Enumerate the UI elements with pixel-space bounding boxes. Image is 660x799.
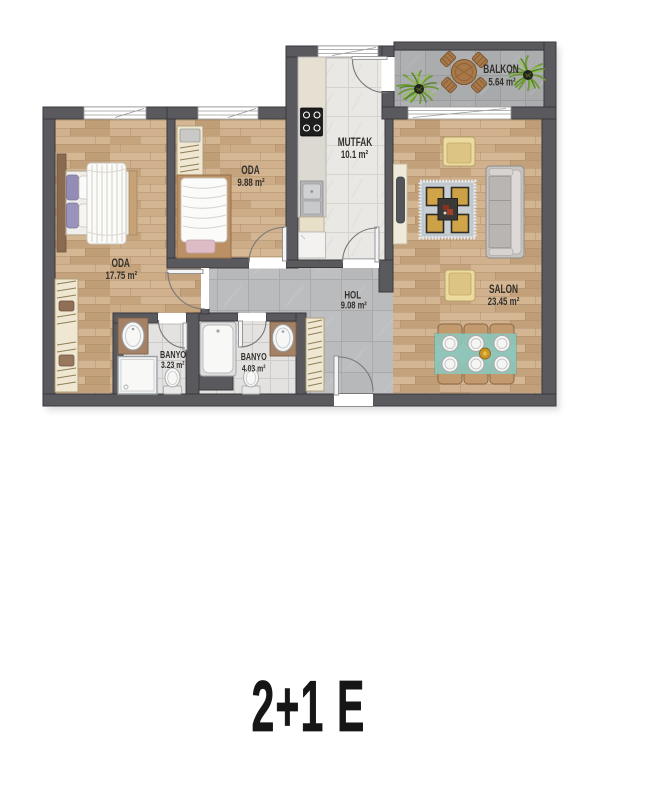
- svg-text:MUTFAK: MUTFAK: [338, 137, 373, 150]
- svg-text:2+1 E: 2+1 E: [251, 667, 365, 747]
- svg-text:BALKON: BALKON: [483, 64, 518, 77]
- svg-text:23.45 m²: 23.45 m²: [488, 296, 520, 309]
- svg-text:ODA: ODA: [112, 258, 130, 271]
- svg-text:ODA: ODA: [241, 165, 259, 178]
- svg-text:BANYO: BANYO: [241, 351, 267, 362]
- svg-text:3.23 m²: 3.23 m²: [161, 360, 185, 370]
- svg-text:17.75 m²: 17.75 m²: [105, 270, 137, 283]
- svg-text:9.88 m²: 9.88 m²: [237, 177, 264, 190]
- svg-text:BANYO: BANYO: [160, 349, 186, 360]
- svg-text:10.1 m²: 10.1 m²: [341, 149, 368, 162]
- svg-text:5.64 m²: 5.64 m²: [488, 76, 515, 89]
- svg-text:9.08 m²: 9.08 m²: [341, 299, 367, 310]
- svg-text:SALON: SALON: [489, 284, 518, 297]
- svg-text:4.03 m²: 4.03 m²: [242, 363, 266, 373]
